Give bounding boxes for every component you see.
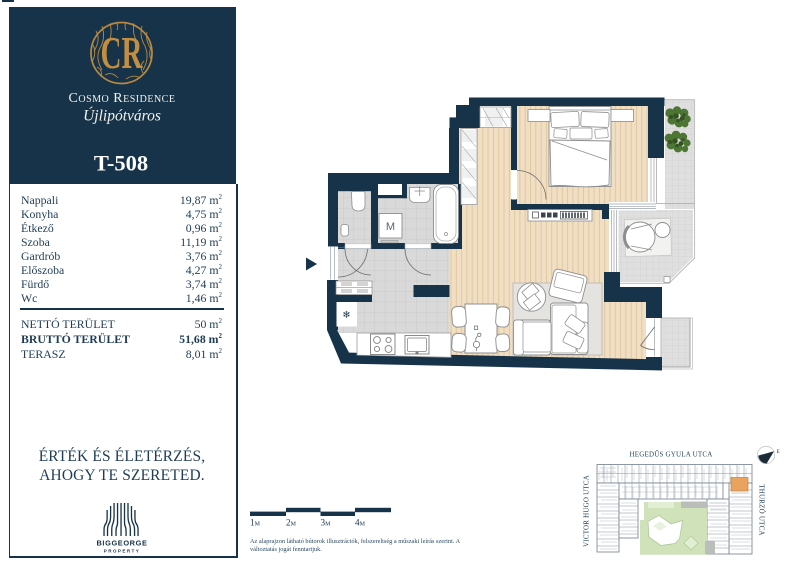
svg-text:3m: 3m (321, 518, 332, 528)
svg-text:M: M (386, 221, 395, 233)
svg-text:változtatás jogát fenntartjuk.: változtatás jogát fenntartjuk. (250, 546, 322, 553)
svg-text:E: E (777, 449, 781, 455)
svg-text:HEGEDŰS GYULA UTCA: HEGEDŰS GYULA UTCA (630, 451, 713, 459)
svg-text:1m: 1m (250, 518, 261, 528)
svg-text:4m: 4m (355, 518, 366, 528)
svg-text:Az alaprajzon látható bútorok: Az alaprajzon látható bútorok illusztrác… (250, 538, 461, 545)
svg-text:❄: ❄ (342, 310, 350, 321)
svg-text:VICTOR HUGO UTCA: VICTOR HUGO UTCA (583, 475, 591, 547)
svg-text:THURZÓ UTCA: THURZÓ UTCA (758, 484, 766, 535)
svg-text:2m: 2m (286, 518, 297, 528)
